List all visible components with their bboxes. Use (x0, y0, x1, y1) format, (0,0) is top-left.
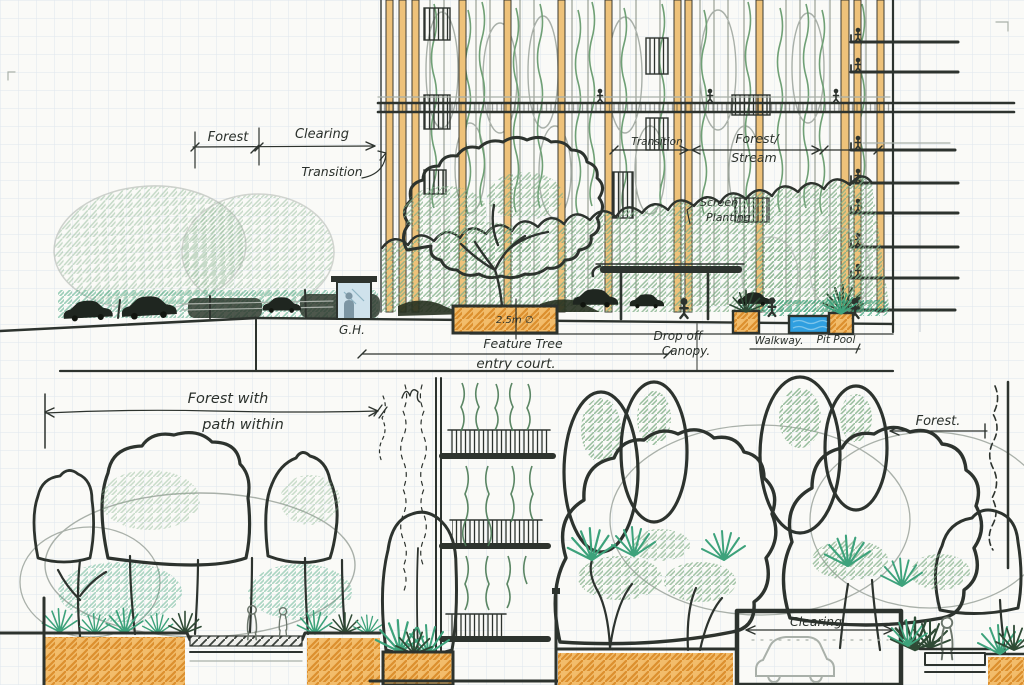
sketch-canvas: Forest Clearing Transition Transition Fo… (0, 0, 1024, 685)
label-clearing-br: Clearing. (790, 614, 846, 629)
label-clearing: Clearing (295, 127, 349, 142)
sketch-page: Forest Clearing Transition Transition Fo… (0, 0, 1024, 685)
label-forest-stream-1: Forest/ (735, 131, 780, 146)
soil-planting (44, 637, 185, 685)
label-transition-right: Transition (631, 136, 683, 148)
label-forest: Forest (208, 130, 250, 145)
label-dropoff-1: Drop off (654, 329, 704, 343)
label-entry-court: entry court. (476, 356, 555, 372)
soil-planting (558, 653, 733, 685)
walkway-path (190, 636, 302, 646)
label-dropoff-2: Canopy. (662, 344, 710, 358)
guard-house (331, 276, 377, 319)
label-path-within: path within (201, 417, 284, 433)
label-feature-tree: Feature Tree (483, 336, 563, 351)
label-screen-planting-1: Screen (700, 196, 738, 209)
planter (733, 311, 759, 333)
soil-planting (988, 657, 1024, 685)
planter (829, 313, 853, 334)
label-guard-house: G.H. (339, 323, 365, 337)
soil-planting (307, 638, 380, 685)
label-pool: Pit Pool (817, 334, 856, 346)
label-transition-left: Transition (301, 164, 362, 179)
label-forest-br: Forest. (916, 414, 961, 429)
label-walkway: Walkway. (755, 335, 804, 347)
label-forest-stream-2: Stream (731, 150, 777, 165)
label-forest-with: Forest with (188, 391, 269, 407)
pool-water (789, 316, 828, 333)
label-planter-dim: 2.5m ∅ (496, 315, 534, 326)
label-screen-planting-2: Planting (706, 211, 751, 224)
